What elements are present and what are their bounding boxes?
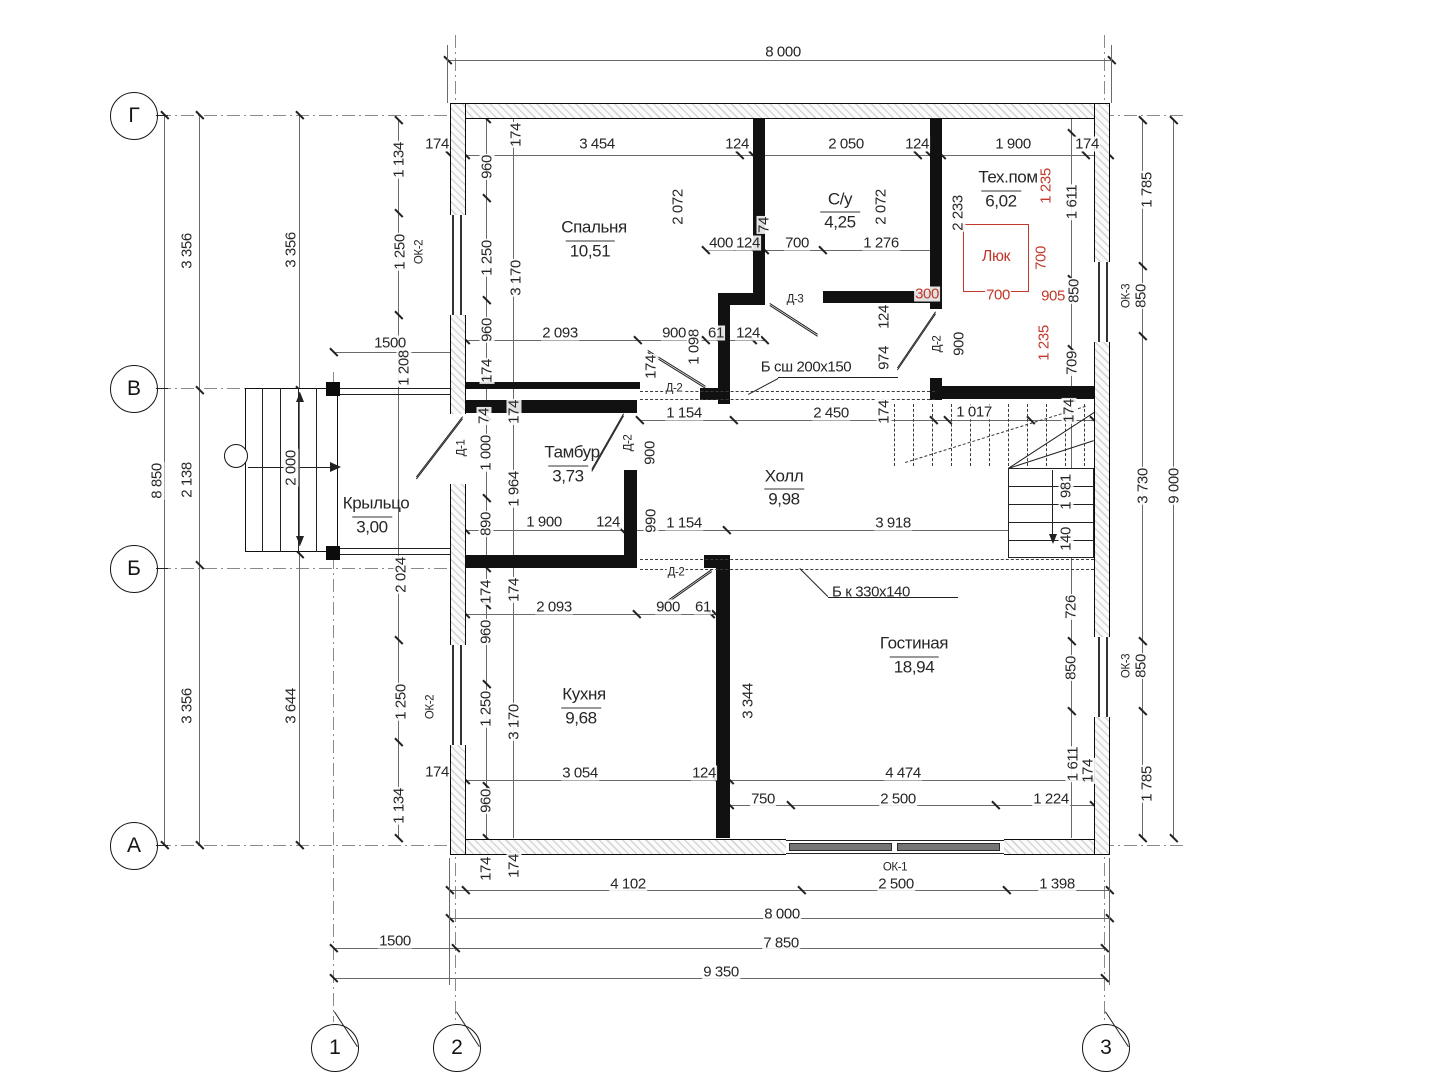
dim-tick [483,680,492,689]
window-glazing [460,645,462,745]
dim-label: 1 134 [392,787,407,825]
porch-rail-line [338,548,450,549]
beam-leader [748,378,778,395]
opening-tag: ОК-3 [1121,653,1133,679]
dim-label: 2 093 [541,326,579,341]
dim-label: 890 [479,511,494,537]
dim-label: 174 [1062,398,1077,424]
extension-line [1111,45,1112,103]
room-area-label: 9,98 [764,489,804,508]
dim-label: 1 017 [955,405,993,420]
porch-rail-line [338,394,450,395]
dim-label: 2 138 [180,461,195,499]
exterior-wall-right [1094,103,1110,855]
dim-label: 124 [595,515,621,530]
hatch-label: Люк [981,249,1011,265]
room-area-label: 4,25 [820,212,860,231]
interior-wall [466,555,637,568]
dim-label: 174 [507,399,522,425]
dim-label: 960 [480,154,495,180]
red-dim-label: 1 235 [1037,324,1052,362]
room-label: Тамбур [543,444,600,461]
exterior-wall-top [450,103,1110,119]
dim-label: 8 000 [764,45,802,60]
axis-label: Г [128,104,139,128]
porch-step-line [316,388,317,552]
dim-line [450,155,1110,156]
stair-direction-arrow [1052,470,1053,534]
room-area-label: 3,73 [548,466,588,485]
axis-leader [156,115,168,116]
interior-wall [704,555,730,568]
dim-label: 1 900 [994,137,1032,152]
beam-bsh-line [640,391,935,392]
dim-label: 1 154 [665,406,703,421]
dim-label: 3 918 [874,516,912,531]
dim-label: 750 [750,792,776,807]
axis-label: 1 [329,1036,341,1060]
floor-plan-canvas: ГВБА1238 0001743 4541242 0501241 9001741… [0,0,1437,1080]
dim-tick [1139,637,1148,646]
dim-tick [483,194,492,203]
dim-label: 1 000 [479,434,494,472]
dim-label: 124 [904,137,930,152]
dim-label: 1 250 [479,690,494,728]
axis-circle-2: 2 [433,1024,481,1072]
stair-tread-upper [932,404,933,466]
dim-label: 174 [479,856,494,882]
room-area-label: 18,94 [890,657,939,676]
dim-tick [395,116,404,125]
window-glazing [452,645,454,745]
dim-tick [395,738,404,747]
axis-leader [156,568,168,569]
dim-label: 2 500 [879,792,917,807]
porch-dim-arrow [296,392,304,402]
axis-circle-В: В [110,365,158,413]
dim-tick [1068,637,1077,646]
dim-label: 3 170 [509,259,524,297]
beam-bk-line [640,559,1094,560]
dim-label: 4 474 [884,766,922,781]
red-dim-label: 300 [914,287,940,302]
dim-label: 850 [1067,278,1082,304]
window-ok2-kitchen [446,645,468,745]
room-label: Кухня [561,686,607,703]
porch-section-mark [224,444,248,468]
dim-tick [395,636,404,645]
dim-label: 400 [708,236,734,251]
dim-label: 1 224 [1032,792,1070,807]
dim-label: 3 356 [284,231,299,269]
dim-label: 3 644 [284,687,299,725]
window-glazing [1106,262,1108,342]
porch-dim-arrow [296,536,304,546]
dim-label: 4 102 [609,877,647,892]
dim-label: 900 [661,326,687,341]
room-area-label: 10,51 [566,241,615,260]
window-glazing [460,215,462,315]
interior-wall [753,119,765,295]
window-ok2-bedroom [446,215,468,315]
dim-label: 61 [707,326,725,341]
axis-label: 3 [1100,1036,1112,1060]
red-dim-label: 1 235 [1039,167,1054,205]
stair-tread [1008,486,1094,487]
axis-leader [156,388,168,389]
dim-label: 726 [1064,594,1079,620]
stair-tread [1008,522,1094,523]
opening-tag: Д-2 [667,567,686,579]
dim-label: 2 093 [535,600,573,615]
opening-tag: ОК-3 [1121,283,1133,309]
window-glazing [1106,637,1108,717]
room-area-label: 6,02 [981,191,1021,210]
dim-tick [1139,262,1148,271]
opening-tag: Д-2 [932,335,944,354]
dim-label: 960 [479,619,494,645]
opening-tag: Д-2 [623,434,635,453]
dim-label: 2 000 [284,449,299,487]
window-ok1-slider [897,843,1000,851]
dim-label: 140 [1059,526,1074,552]
dim-label: 1 611 [1066,746,1081,782]
dim-label: 2 233 [951,194,966,232]
dim-label: 1 611 [1065,184,1080,220]
red-dim-label: 700 [1034,245,1049,271]
dim-label: 900 [643,440,658,466]
dim-label: 9 000 [1167,467,1182,505]
dim-label: 174 [507,577,522,603]
dim-label: 1 785 [1140,171,1155,209]
dim-label: 2 072 [874,188,889,226]
opening-tag: Д-1 [456,439,468,458]
dim-label: 3 356 [180,232,195,270]
stair-tread-upper [1046,404,1047,466]
dim-label: 1 276 [862,236,900,251]
stair-tread-upper [894,404,895,466]
beam-leader [778,377,898,378]
dim-label: 174 [424,137,450,152]
dim-label: 1 250 [394,683,409,721]
room-label: С/у [827,191,853,208]
dim-label: 850 [1064,655,1079,681]
dim-tick [1170,116,1179,125]
dim-label: 8 000 [763,907,801,922]
dim-label: 174 [480,358,495,384]
axis-label: Б [127,557,141,581]
dim-label: 2 050 [827,137,865,152]
dim-label: 174 [1074,137,1100,152]
dim-label: 2 072 [671,188,686,226]
dim-label: 2 500 [877,877,915,892]
dim-label: 124 [691,766,717,781]
axis-circle-А: А [110,822,158,870]
dim-label: 3 170 [507,703,522,741]
window-ok1-slider [789,843,892,851]
dim-label: 124 [724,137,750,152]
dim-label: 1 785 [1140,765,1155,803]
exterior-wall-bottom [450,839,1110,855]
room-label: Холл [764,468,804,485]
window-frame [786,840,1004,841]
dim-tick [1068,707,1077,716]
dim-label: 1500 [378,934,412,949]
porch-rail-line [338,554,450,555]
dim-line [640,420,1094,421]
stair-arrow-head [1049,534,1057,544]
dim-tick [395,209,404,218]
window-glazing [452,215,454,315]
window-glazing [1098,637,1100,717]
stair-tread [1008,504,1094,505]
interior-wall [624,470,637,568]
interior-wall [718,293,765,305]
dim-label: 124 [735,326,761,341]
axis-circle-1: 1 [311,1024,359,1072]
dim-label: 1 981 [1059,473,1074,511]
dim-label: 3 054 [561,766,599,781]
dim-label: 174 [877,399,892,425]
dim-label: 3 356 [180,687,195,725]
room-label: Тех.пом [977,169,1038,186]
dim-label: 3 344 [741,682,756,720]
axis-label: А [127,834,141,858]
dim-label: 974 [877,345,892,371]
red-dim-label: 905 [1040,289,1066,304]
porch-step-line [280,388,281,552]
dim-label: 174 [1081,758,1096,784]
interior-wall [941,386,1094,399]
dim-tick [1139,116,1148,125]
window-frame [786,853,1004,854]
dim-label: 1 964 [507,470,522,508]
opening-tag: Д-3 [786,294,805,306]
dim-label: 900 [952,331,967,357]
dim-label: 9 350 [702,965,740,980]
room-area-label: 9,68 [561,708,601,727]
axis-circle-3: 3 [1082,1024,1130,1072]
dim-label: 850 [1134,283,1149,309]
dim-label: 1 208 [397,349,412,387]
stair-tread-upper [1008,404,1009,466]
extension-line [1109,858,1110,985]
dim-label: 3 730 [1136,467,1151,505]
porch-arrow-head [330,462,341,472]
dim-label: 1 134 [392,141,407,179]
dim-label: 174 [644,354,659,380]
dim-label: 174 [509,122,524,148]
dim-label: 700 [784,236,810,251]
dim-label: 900 [655,600,681,615]
dim-label: 1 900 [525,515,563,530]
door-swing-line [769,305,818,337]
dim-label: 74 [477,407,492,425]
opening-tag: Д-2 [665,383,684,395]
dim-label: 7 850 [762,936,800,951]
dim-tick [483,494,492,503]
room-label: Спальня [560,219,628,236]
axis-circle-Б: Б [110,545,158,593]
dim-label: 124 [877,304,892,330]
dim-label: 2 024 [394,556,409,594]
dim-label: 174 [424,765,450,780]
dim-line [398,120,399,838]
dim-line [450,890,1110,891]
dim-label: 850 [1134,653,1149,679]
stair-lower-flight [1008,468,1094,558]
opening-tag: ОК-2 [425,694,437,720]
axis-leader [156,845,168,846]
dim-label: 174 [507,853,522,879]
interior-wall [716,568,730,838]
dim-tick [1139,707,1148,716]
dim-label: 1 250 [393,233,408,271]
dim-label: 960 [480,317,495,343]
dim-label: 990 [644,508,659,534]
window-glazing [1098,262,1100,342]
porch-step-line [262,388,263,552]
stair-tread-upper [951,404,952,466]
dim-label: 960 [479,788,494,814]
dim-label: 8 850 [150,462,165,500]
interior-wall [930,119,942,309]
beam-tag: Б сш 200х150 [760,360,852,375]
dim-label: 74 [757,216,772,234]
axis-label: В [127,377,141,401]
room-area-label: 3,00 [352,517,392,536]
door-swing-line [897,313,936,370]
stair-tread-upper [1084,404,1085,466]
red-dim-label: 700 [985,288,1011,303]
dim-label: 2 450 [812,406,850,421]
dim-label: 1 398 [1038,877,1076,892]
axis-circle-Г: Г [110,92,158,140]
dim-label: 61 [694,600,712,615]
window-ok3-lower [1092,637,1114,717]
dim-tick [1139,834,1148,843]
dim-label: 3 454 [578,137,616,152]
dim-tick [1170,834,1179,843]
stair-tread-upper [913,404,914,466]
dim-tick [483,296,492,305]
door-swing-line [769,303,818,335]
dim-label: 1 098 [687,328,702,366]
porch-post [326,546,340,560]
dim-line [486,119,487,838]
porch-rail-line [338,388,450,389]
opening-tag: ОК-1 [882,862,908,874]
beam-tag: Б к 330х140 [831,585,911,600]
dim-label: 1 154 [665,516,703,531]
stair-winder-line [1008,440,1094,469]
dim-label: 709 [1065,350,1080,376]
window-ok3-upper [1092,262,1114,342]
dim-line [199,115,200,845]
extension-line [447,45,448,103]
axis-label: 2 [451,1036,463,1060]
porch-post [326,382,340,396]
dim-label: 1 250 [480,239,495,277]
dim-tick [196,386,205,395]
dim-tick [1139,332,1148,341]
dim-label: 174 [479,579,494,605]
room-label: Крыльцо [342,495,411,512]
beam-leader [799,568,828,597]
opening-tag: ОК-2 [414,239,426,265]
room-label: Гостиная [879,635,949,652]
dim-label: 124 [735,236,761,251]
dim-tick [395,834,404,843]
dim-tick [395,311,404,320]
extension-line [449,858,450,985]
